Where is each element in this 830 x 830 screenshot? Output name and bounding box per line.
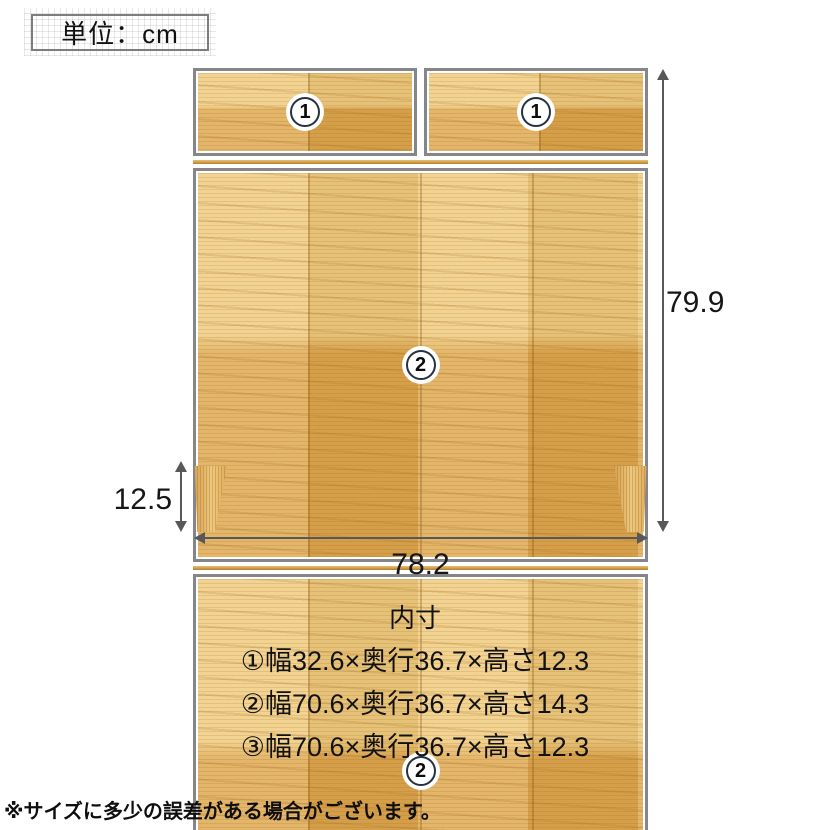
arrow-down-icon: [657, 521, 669, 532]
drawer-number: 1: [290, 97, 320, 127]
shelf-strip: [193, 156, 648, 168]
inner-dimensions-block: 内寸 ①幅32.6×奥行36.7×高さ12.3 ②幅70.6×奥行36.7×高さ…: [0, 601, 830, 769]
inner-dimension-item-1: ①幅32.6×奥行36.7×高さ12.3: [0, 640, 830, 683]
arrow-line: [202, 537, 640, 539]
drawer-number-badge: 2: [402, 346, 440, 384]
arrow-line: [180, 469, 182, 524]
drawer-1-right: 1: [424, 68, 648, 156]
drawer-2: 2: [193, 168, 648, 562]
arrow-right-icon: [637, 532, 648, 544]
drawer-1-left: 1: [193, 68, 417, 156]
drawer-number: 1: [521, 97, 551, 127]
inner-dimension-item-3: ③幅70.6×奥行36.7×高さ12.3: [0, 726, 830, 769]
total-width-label: 78.2: [193, 547, 648, 583]
total-height-label: 79.9: [666, 285, 724, 321]
drawer-number: 2: [406, 350, 436, 380]
size-tolerance-footnote: ※サイズに多少の誤差がある場合がございます。: [4, 799, 441, 825]
inner-dimensions-title: 内寸: [0, 601, 830, 635]
leg-height-label: 12.5: [95, 482, 172, 518]
inner-dimension-item-2: ②幅70.6×奥行36.7×高さ14.3: [0, 683, 830, 726]
drawer-number-badge: 1: [517, 93, 555, 131]
chest-diagram: 1 1 2 2: [193, 68, 648, 462]
unit-label: 単位：cm: [31, 14, 209, 51]
drawer-number-badge: 1: [286, 93, 324, 131]
total-width-arrow: [194, 531, 648, 545]
arrow-down-icon: [175, 521, 187, 532]
product-dimension-diagram: 単位：cm 1 1 2: [0, 0, 830, 830]
drawer-row-1: 1 1: [193, 68, 648, 156]
leg-height-arrow: [174, 461, 188, 532]
arrow-line: [662, 77, 664, 524]
unit-label-box: 単位：cm: [24, 8, 216, 56]
